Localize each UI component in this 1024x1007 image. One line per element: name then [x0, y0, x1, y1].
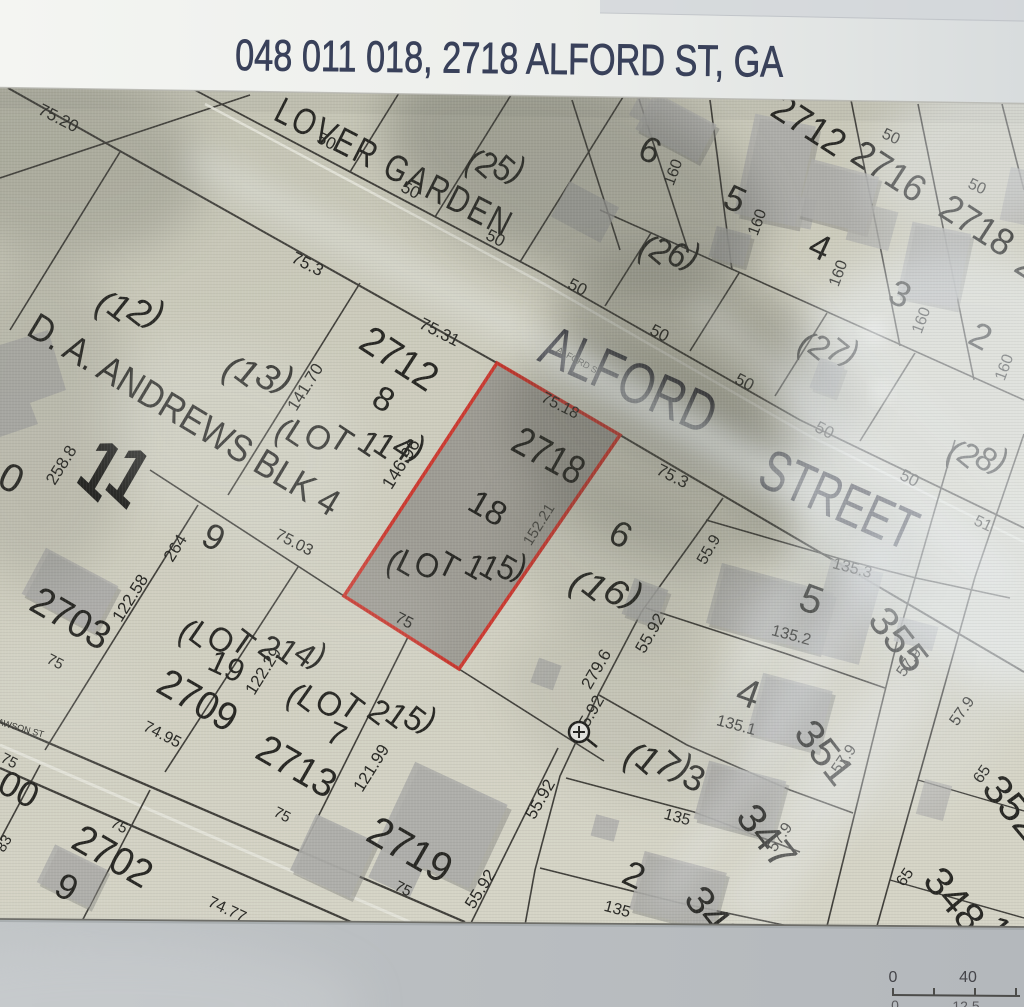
svg-text:12.5: 12.5	[952, 998, 979, 1007]
svg-text:0: 0	[889, 969, 898, 986]
svg-text:0: 0	[891, 997, 899, 1007]
svg-text:048 011 018, 2718 ALFORD ST,: 048 011 018, 2718 ALFORD ST, GA	[235, 31, 784, 87]
svg-text:40: 40	[959, 969, 977, 986]
